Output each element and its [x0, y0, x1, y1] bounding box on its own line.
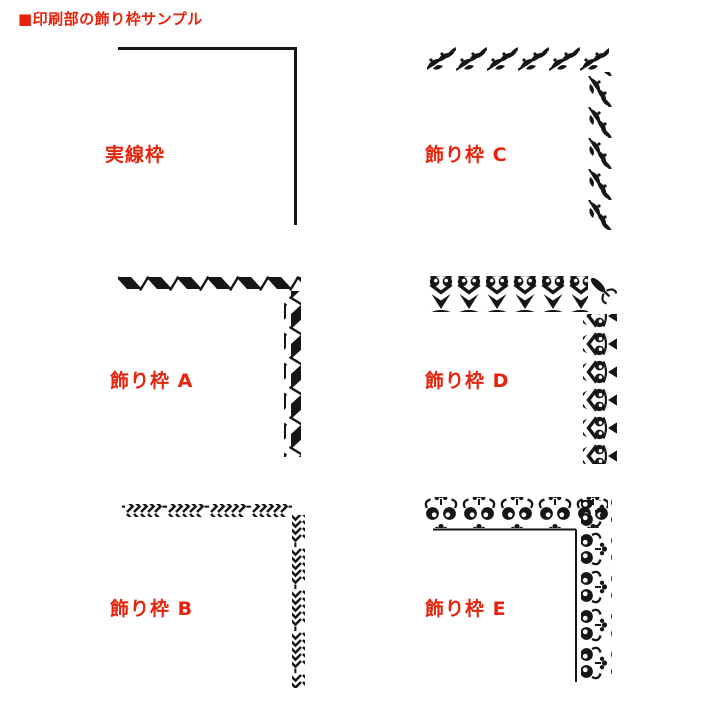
sample-label-b: 飾り枠 B [110, 594, 193, 621]
sample-label-d: 飾り枠 D [425, 366, 509, 393]
sample-label-c: 飾り枠 C [425, 140, 508, 167]
leaf-vine-corner-border [425, 45, 613, 233]
solid-corner-border [118, 47, 297, 225]
sample-label-e: 飾り枠 E [425, 594, 507, 621]
sample-label-solid: 実線枠 [105, 140, 165, 167]
sample-label-a: 飾り枠 A [110, 366, 193, 393]
corner-leaf-ornament [586, 274, 617, 304]
page-title: ■印刷部の飾り枠サンプル [18, 8, 203, 29]
floral-scroll-corner-border [422, 492, 616, 690]
